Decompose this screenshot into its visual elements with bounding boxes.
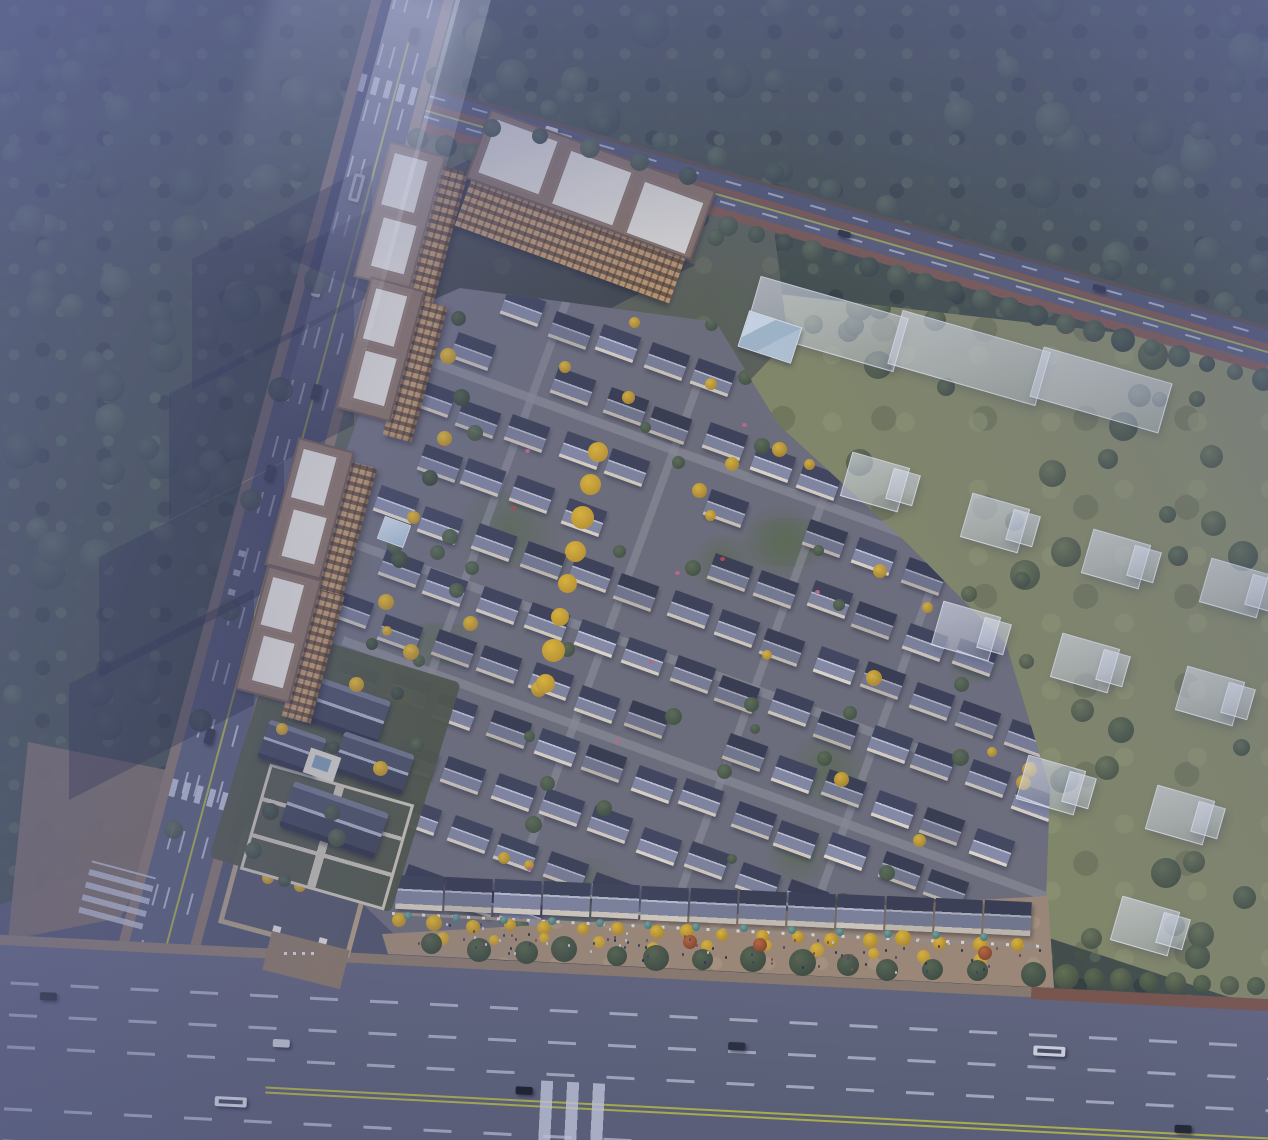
haze-bottomleft	[0, 0, 1268, 1140]
fog-overlay	[0, 0, 1268, 1140]
aerial-masterplan-rendering	[0, 0, 1268, 1140]
